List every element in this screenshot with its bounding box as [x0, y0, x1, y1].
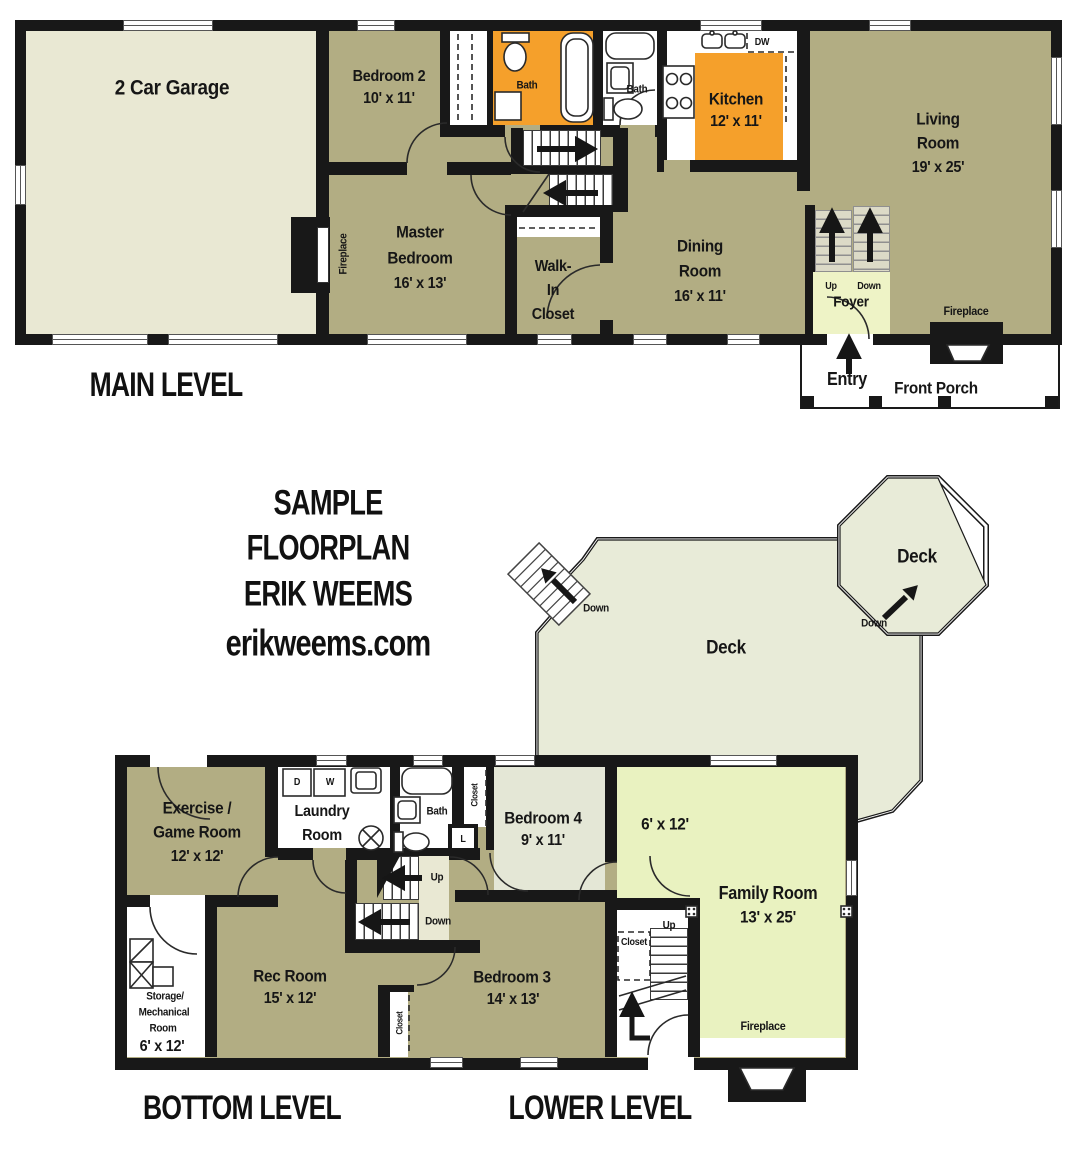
master-dims: 16' x 13'	[394, 276, 446, 292]
bedroom2-label: Bedroom 2	[353, 69, 426, 85]
dw-label: DW	[755, 38, 769, 48]
bath1-room	[493, 31, 593, 125]
bedroom2-dims: 10' x 11'	[363, 91, 415, 107]
master-label-1: Master	[396, 224, 444, 241]
right-closet-label: Closet	[621, 938, 647, 948]
bottom-level-title: BOTTOM LEVEL	[143, 1091, 341, 1125]
living-dims: 19' x 25'	[912, 160, 964, 176]
storage-dims: 6' x 12'	[140, 1039, 185, 1055]
deck-down-label-1: Down	[583, 604, 609, 615]
living-fireplace-label: Fireplace	[944, 305, 989, 317]
lower-stairs-up	[383, 856, 419, 900]
storage-room	[127, 907, 205, 1057]
garage-label: 2 Car Garage	[115, 78, 229, 99]
lower-bath-label: Bath	[427, 807, 448, 818]
nook-dims-label: 6' x 12'	[641, 816, 689, 833]
storage-label-2: Mechanical	[139, 1008, 190, 1019]
exercise-dims: 12' x 12'	[171, 849, 223, 865]
floorplan-canvas: 2 Car Garage Bedroom 2 10' x 11' Bath Ba…	[0, 0, 1080, 1157]
family-fireplace-label: Fireplace	[741, 1020, 786, 1032]
right-up-label: Up	[663, 921, 676, 932]
mid-down-label: Down	[425, 917, 451, 928]
deck-down-label-2: Down	[861, 619, 887, 630]
dining-label-1: Dining	[677, 238, 723, 255]
exercise-label-1: Exercise /	[163, 800, 232, 817]
foyer-label: Foyer	[833, 295, 868, 310]
mid-up-label: Up	[431, 873, 444, 884]
brand-line-1: SAMPLE	[273, 486, 382, 521]
brand-line-3: ERIK WEEMS	[244, 577, 412, 612]
kitchen-label: Kitchen	[709, 91, 763, 108]
family-fireplace	[728, 1066, 806, 1102]
laundry-w-label: W	[326, 778, 334, 788]
walkin-label-1: Walk-	[535, 259, 572, 275]
bedroom4-room	[494, 767, 605, 890]
lower-level-title: LOWER LEVEL	[509, 1091, 692, 1125]
bath2-room	[603, 31, 657, 125]
living-fireplace	[930, 322, 1003, 364]
bedroom2-closet	[450, 31, 487, 125]
family-hearth	[700, 1038, 845, 1057]
dining-dims: 16' x 11'	[674, 289, 726, 305]
laundry-label-1: Laundry	[295, 804, 350, 820]
foyer-down-label: Down	[857, 282, 880, 292]
entry-label: Entry	[827, 370, 867, 388]
bedroom4-label: Bedroom 4	[504, 810, 581, 827]
lower-stairs-down	[355, 903, 419, 940]
foyer-up-label: Up	[825, 282, 836, 292]
living-label-2: Room	[917, 135, 959, 152]
foyer-stairs-down	[853, 206, 890, 272]
rec-closet-label: Closet	[396, 1011, 405, 1034]
bath1-label: Bath	[517, 81, 538, 92]
bedroom3-dims: 14' x 13'	[487, 992, 539, 1008]
walkin-label-2: In	[547, 283, 559, 299]
basement-stairs	[650, 928, 688, 1000]
storage-label-3: Room	[150, 1024, 177, 1035]
kitchen-dims: 12' x 11'	[710, 114, 762, 130]
deck-main-label: Deck	[706, 639, 746, 658]
master-fireplace-label: Fireplace	[339, 233, 350, 274]
deck-octagon-label: Deck	[897, 548, 937, 567]
rec-room-label: Rec Room	[253, 968, 327, 985]
master-label-2: Bedroom	[387, 250, 452, 267]
walkin-shelf	[517, 217, 600, 237]
deck-down-arrow-right	[884, 579, 924, 618]
rec-room-dims: 15' x 12'	[264, 991, 316, 1007]
main-level-title: MAIN LEVEL	[90, 368, 243, 402]
laundry-d-label: D	[294, 778, 300, 788]
living-label-1: Living	[916, 111, 959, 128]
family-room-label: Family Room	[719, 884, 818, 902]
brand-line-2: FLOORPLAN	[247, 531, 410, 566]
foyer-stairs-up	[815, 210, 852, 272]
exercise-label-2: Game Room	[153, 824, 241, 841]
lower-closet-top-label: Closet	[471, 783, 480, 806]
bedroom4-dims: 9' x 11'	[521, 833, 565, 849]
storage-label-1: Storage/	[146, 992, 183, 1003]
laundry-label-2: Room	[302, 828, 342, 844]
deck-stairs	[508, 543, 590, 625]
family-room-dims: 13' x 25'	[740, 909, 796, 926]
bedroom3-label: Bedroom 3	[473, 969, 550, 986]
dining-label-2: Room	[679, 263, 721, 280]
brand-url: erikweems.com	[226, 625, 431, 662]
main-stairs-upper	[523, 130, 601, 166]
walkin-label-3: Closet	[532, 307, 574, 323]
deck-down-arrow-left	[535, 562, 575, 602]
bath2-label: Bath	[627, 85, 648, 96]
linen-label: L	[460, 835, 465, 845]
front-porch-label: Front Porch	[894, 380, 978, 397]
